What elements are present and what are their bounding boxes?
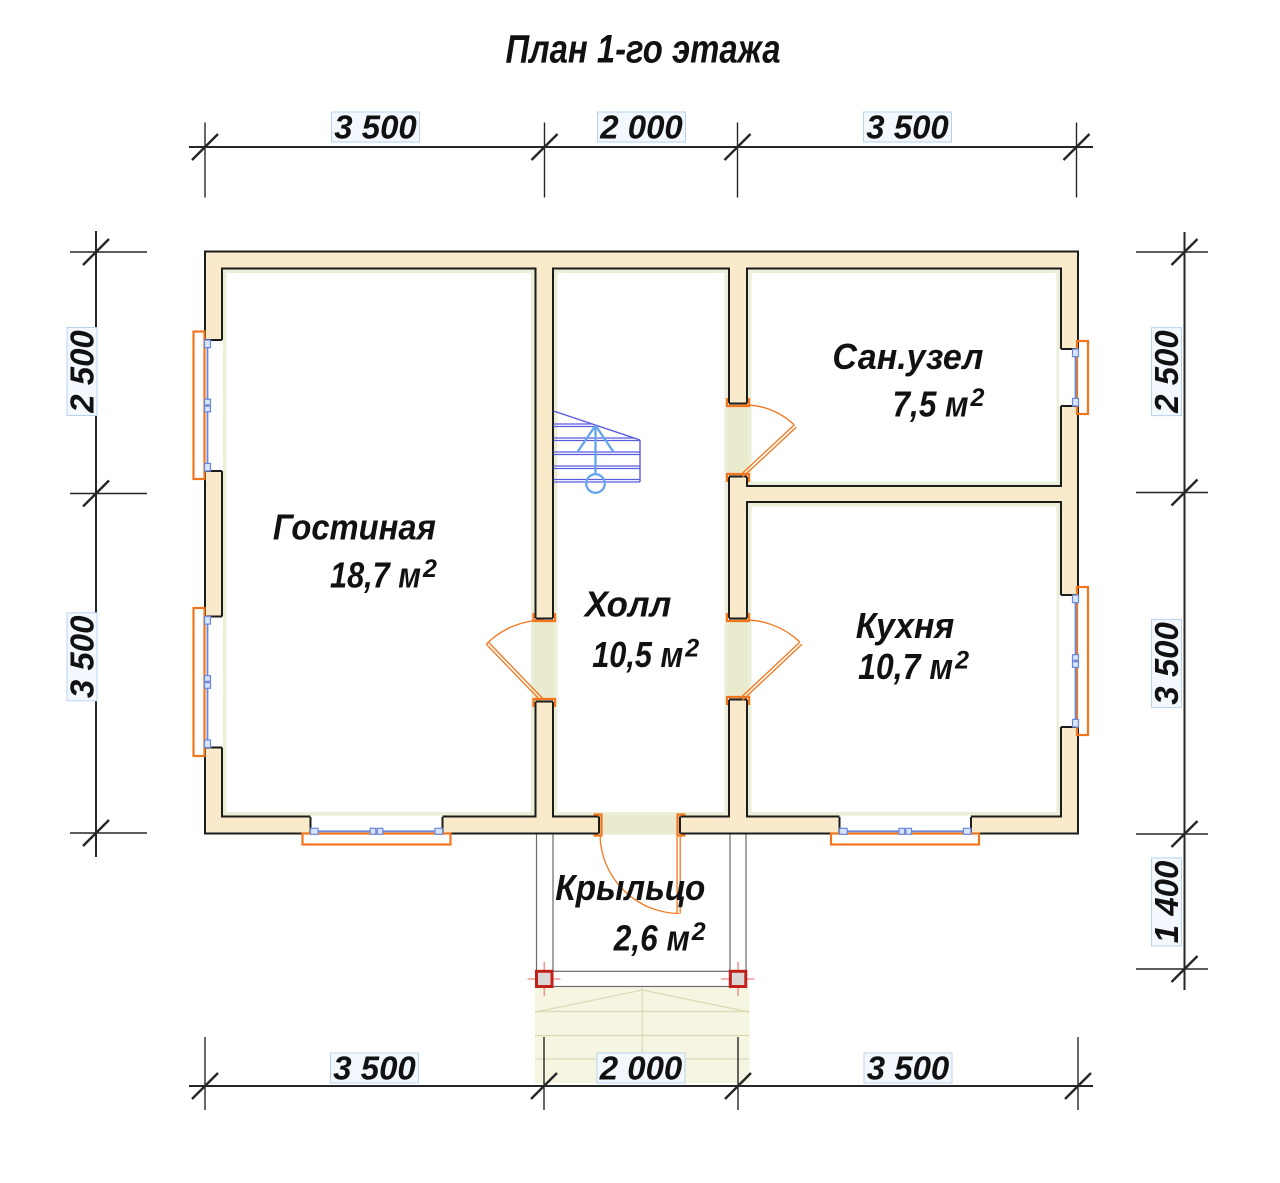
svg-text:3 500: 3 500	[333, 1050, 416, 1087]
svg-text:2: 2	[691, 918, 706, 946]
svg-text:2,6 м: 2,6 м	[613, 918, 690, 959]
svg-text:Сан.узел: Сан.узел	[832, 336, 983, 377]
svg-text:2: 2	[970, 384, 985, 412]
svg-text:Крыльцо: Крыльцо	[555, 867, 705, 908]
svg-text:2 000: 2 000	[599, 1050, 683, 1087]
svg-text:2: 2	[954, 647, 969, 675]
svg-text:3 500: 3 500	[867, 1050, 950, 1087]
svg-text:2 500: 2 500	[1148, 330, 1185, 414]
svg-text:План 1-го этажа: План 1-го этажа	[506, 28, 781, 72]
svg-text:2: 2	[422, 555, 437, 583]
svg-text:7,5 м: 7,5 м	[893, 384, 969, 425]
svg-text:Холл: Холл	[583, 584, 671, 625]
svg-text:2 500: 2 500	[64, 330, 101, 414]
svg-text:10,7 м: 10,7 м	[858, 646, 953, 687]
svg-text:3 500: 3 500	[64, 615, 101, 698]
svg-text:3 500: 3 500	[866, 109, 949, 146]
svg-text:2: 2	[684, 635, 699, 663]
svg-text:3 500: 3 500	[334, 109, 417, 146]
svg-text:1 400: 1 400	[1148, 860, 1185, 943]
svg-text:Кухня: Кухня	[856, 605, 955, 646]
svg-text:10,5 м: 10,5 м	[592, 634, 683, 675]
svg-text:18,7 м: 18,7 м	[330, 555, 421, 596]
svg-text:3 500: 3 500	[1148, 621, 1185, 704]
svg-text:2 000: 2 000	[599, 109, 683, 146]
svg-text:Гостиная: Гостиная	[273, 507, 436, 548]
